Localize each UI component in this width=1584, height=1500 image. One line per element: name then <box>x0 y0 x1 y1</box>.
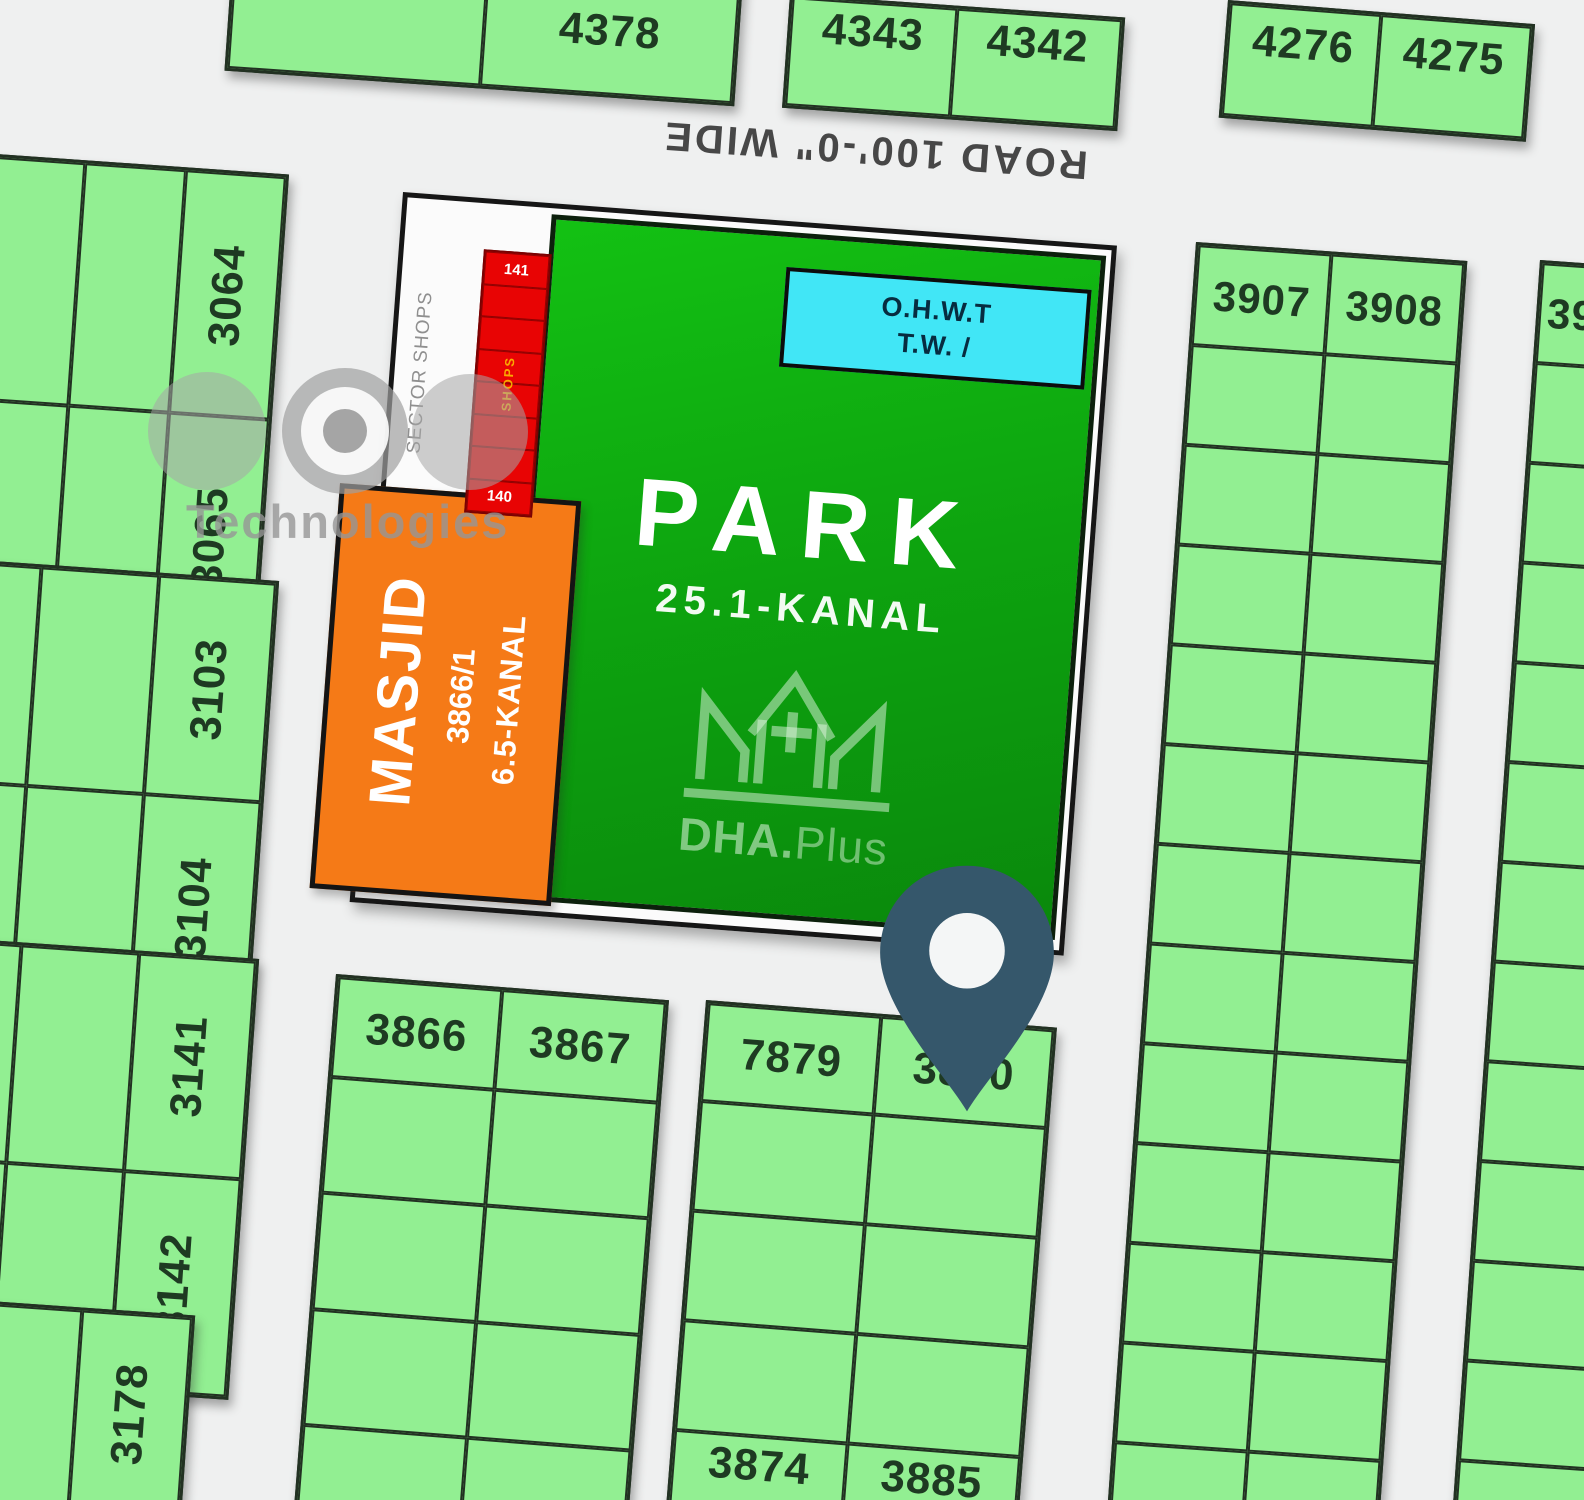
plot-cell[interactable] <box>1178 445 1318 554</box>
plot-cell[interactable] <box>1487 961 1584 1070</box>
plot-number: 4343 <box>821 7 926 58</box>
masjid-area-label: 6.5-KANAL <box>484 613 533 786</box>
dha-bold-text: DHA. <box>677 808 797 869</box>
plot-cell[interactable] <box>1318 354 1458 463</box>
plot-cell[interactable] <box>692 1101 873 1224</box>
plot-number: 3867 <box>528 1020 633 1072</box>
shop-number: 140 <box>486 487 512 506</box>
plot-number: 3103 <box>184 637 235 742</box>
plot-block-top-far: 4378 <box>224 0 744 106</box>
plot-3141[interactable]: 3141 <box>124 954 256 1180</box>
plot-cell[interactable] <box>1290 753 1430 862</box>
plot-cell[interactable] <box>675 1320 856 1443</box>
plot-cell[interactable] <box>1473 1161 1584 1270</box>
plot-39xx[interactable]: 39 <box>1536 263 1584 372</box>
plot-cell[interactable] <box>1108 1442 1248 1500</box>
plot-cell[interactable] <box>1311 454 1451 563</box>
plot-cell[interactable] <box>1466 1261 1584 1370</box>
plot-cell[interactable] <box>1129 1143 1269 1252</box>
plot-7879[interactable]: 7879 <box>701 1003 881 1114</box>
plot-cell[interactable] <box>1262 1152 1402 1261</box>
plot-cell[interactable] <box>684 1211 865 1334</box>
plot-block-top-right: 4276 4275 <box>1219 0 1535 142</box>
shop-number: 141 <box>503 261 529 280</box>
plot-cell[interactable] <box>1522 463 1584 572</box>
sector-shops-label: SECTOR SHOPS <box>389 244 452 503</box>
plot-cell[interactable] <box>485 1090 658 1219</box>
shops-strip-label: SHOPS <box>472 321 545 445</box>
plot-cell[interactable] <box>1157 744 1297 853</box>
plot-cell[interactable] <box>1494 862 1584 971</box>
plot-block-top-mid: 4343 4342 <box>782 0 1125 131</box>
overhead-water-tank[interactable]: O.H.W.T T.W. / <box>779 267 1092 390</box>
plot-cell[interactable] <box>1276 953 1416 1062</box>
plot-cell[interactable] <box>476 1206 649 1335</box>
dha-plus-watermark: DHA.Plus <box>612 626 968 881</box>
plot-cell[interactable] <box>865 1114 1046 1237</box>
plot-block-far-right: 39 <box>1449 260 1584 1500</box>
plot-cell[interactable] <box>1283 853 1423 962</box>
plot-cell[interactable] <box>1515 562 1584 671</box>
plot-cell[interactable] <box>228 0 490 85</box>
plot-cell[interactable] <box>1150 844 1290 953</box>
plot-map: ROAD 100'-0" WIDE 4378 4343 4342 4276 42… <box>0 0 1584 1500</box>
plot-cell[interactable] <box>1164 644 1304 753</box>
shop-cell[interactable]: 141 <box>483 251 549 288</box>
watermark-donut-ring <box>301 387 389 475</box>
shop-cell[interactable] <box>469 446 535 483</box>
plot-cell[interactable] <box>294 1425 467 1500</box>
plot-cell[interactable] <box>322 1077 495 1206</box>
park-label: PARK 25.1-KANAL <box>527 457 1083 653</box>
plot-number: 3907 <box>1212 275 1312 324</box>
plot-4342[interactable]: 4342 <box>950 9 1122 128</box>
plot-3178[interactable]: 3178 <box>68 1311 192 1500</box>
plot-cell[interactable] <box>27 567 159 794</box>
sector-boundary: SECTOR SHOPS 141 140 SHOPS O.H.W.T T.W. … <box>350 192 1117 956</box>
plot-cell[interactable] <box>1508 662 1584 771</box>
ohwt-line2: T.W. / <box>896 326 972 367</box>
watermark-donut-core <box>323 409 367 453</box>
dha-plus-logo-icon <box>678 631 909 797</box>
plot-number: 39 <box>1546 293 1584 338</box>
plot-number: 4342 <box>985 19 1090 70</box>
plot-cell[interactable] <box>1304 554 1444 663</box>
plot-cell[interactable] <box>1480 1061 1584 1170</box>
plot-3907[interactable]: 3907 <box>1192 245 1332 354</box>
plot-3103[interactable]: 3103 <box>144 576 276 803</box>
plot-3064[interactable]: 3064 <box>169 170 286 419</box>
plot-3866[interactable]: 3866 <box>331 977 502 1090</box>
plot-number: 3885 <box>879 1454 984 1500</box>
ohwt-line1: O.H.W.T <box>880 289 993 332</box>
plot-cell[interactable] <box>1501 762 1584 871</box>
plot-cell[interactable] <box>1136 1043 1276 1152</box>
plot-cell[interactable] <box>1115 1343 1255 1452</box>
plot-cell[interactable] <box>856 1224 1037 1347</box>
plot-number: 3874 <box>707 1441 812 1493</box>
plot-number: 3908 <box>1344 285 1444 334</box>
plot-cell[interactable] <box>1297 654 1437 763</box>
plot-number: 3064 <box>202 243 253 348</box>
plot-number: 3178 <box>105 1362 156 1467</box>
plot-3867[interactable]: 3867 <box>494 990 665 1103</box>
plot-number: 3104 <box>169 855 220 960</box>
plot-number: 4378 <box>558 6 663 57</box>
plot-block-left-d: 3178 <box>0 1292 195 1500</box>
plot-cell[interactable] <box>0 1303 82 1500</box>
park-area[interactable]: O.H.W.T T.W. / PARK 25.1-KANAL <box>500 214 1106 940</box>
plot-cell[interactable] <box>1459 1361 1584 1470</box>
plot-cell[interactable] <box>1255 1252 1395 1361</box>
shop-cell[interactable] <box>481 284 547 321</box>
plot-4378[interactable]: 4378 <box>480 0 742 103</box>
masjid-title: MASJID <box>355 573 439 809</box>
location-pin-icon[interactable] <box>872 862 1062 1117</box>
masjid-plot-number: 3866/1 <box>439 647 482 744</box>
plot-4275[interactable]: 4275 <box>1373 15 1532 139</box>
plot-4343[interactable]: 4343 <box>785 0 957 116</box>
plot-number: 7879 <box>739 1033 844 1085</box>
plot-3908[interactable]: 3908 <box>1324 254 1464 363</box>
plot-block-bottom-left: 3866 3867 <box>291 974 669 1500</box>
plot-block-right: 3907 3908 <box>1105 242 1467 1500</box>
masjid-area[interactable]: MASJID 3866/1 6.5-KANAL <box>310 483 582 906</box>
plot-cell[interactable] <box>7 945 139 1171</box>
plot-cell[interactable] <box>1171 544 1311 653</box>
plot-cell[interactable] <box>1529 363 1584 472</box>
shop-cell[interactable]: 140 <box>466 478 532 515</box>
plot-cell[interactable] <box>1248 1352 1388 1461</box>
plot-4276[interactable]: 4276 <box>1222 3 1381 127</box>
plot-cell[interactable] <box>68 163 185 412</box>
plot-number: 4276 <box>1251 19 1356 71</box>
plot-cell[interactable] <box>1241 1452 1381 1500</box>
plot-cell[interactable] <box>313 1193 486 1322</box>
plot-cell[interactable] <box>304 1309 477 1438</box>
plot-number: 3866 <box>364 1008 469 1060</box>
plot-cell[interactable] <box>1143 943 1283 1052</box>
plot-cell[interactable] <box>1122 1243 1262 1352</box>
plot-number: 4275 <box>1401 31 1506 83</box>
plot-cell[interactable] <box>1269 1053 1409 1162</box>
plot-cell[interactable] <box>1185 345 1325 454</box>
plot-cell[interactable] <box>848 1334 1029 1457</box>
plot-3874[interactable]: 3874 <box>666 1430 848 1500</box>
plot-cell[interactable] <box>467 1322 640 1451</box>
plot-number: 3141 <box>164 1014 215 1119</box>
